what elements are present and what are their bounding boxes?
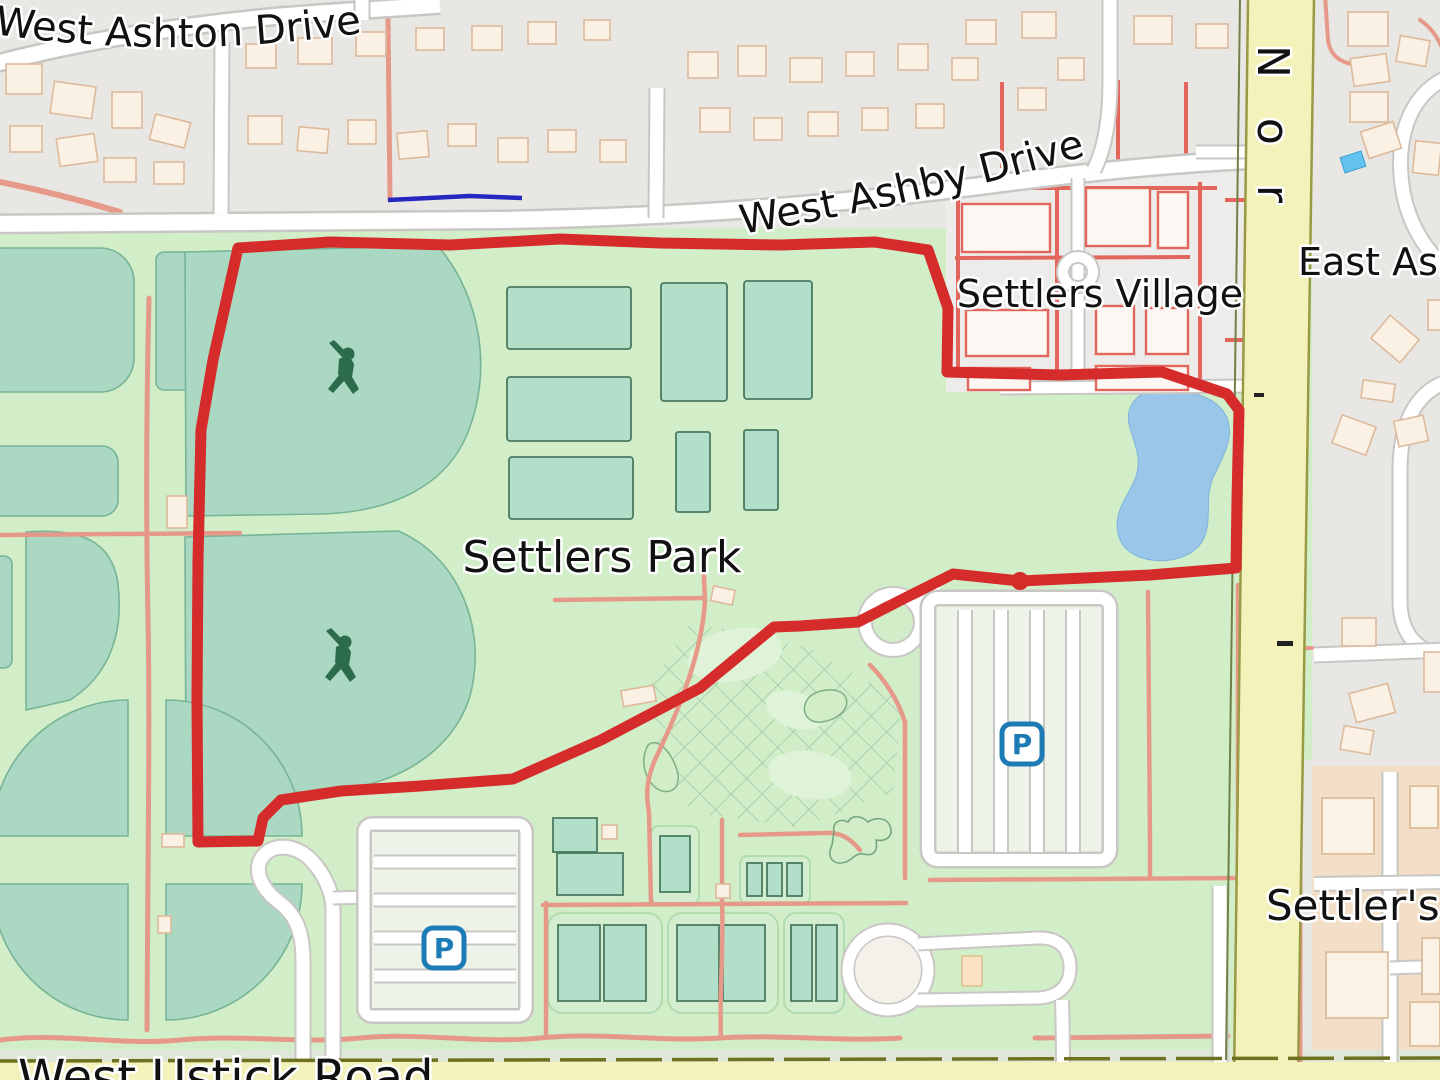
parking-letter: P xyxy=(1012,728,1033,761)
place-label-settlers: Settler's xyxy=(1266,881,1440,930)
street-label-north-road: Nor xyxy=(1247,45,1298,243)
map-svg: P P West Ashton Drive West Ashby Drive E… xyxy=(0,0,1440,1080)
place-label-settlers-park: Settlers Park xyxy=(463,532,742,583)
street-label-west-ustick-road: West Ustick Road xyxy=(18,1050,433,1080)
barrier-marker xyxy=(1277,641,1293,646)
parking-icon: P xyxy=(1002,724,1042,764)
place-label-settlers-village: Settlers Village xyxy=(957,272,1243,316)
map-canvas[interactable]: P P West Ashton Drive West Ashby Drive E… xyxy=(0,0,1440,1080)
route-waypoint-dot xyxy=(1011,572,1029,590)
parking-icon: P xyxy=(424,928,464,968)
barrier-marker xyxy=(1254,393,1264,397)
street-label-east-ashby: East Ash xyxy=(1298,240,1440,284)
parking-letter: P xyxy=(434,932,455,965)
splash-structure xyxy=(962,956,982,986)
